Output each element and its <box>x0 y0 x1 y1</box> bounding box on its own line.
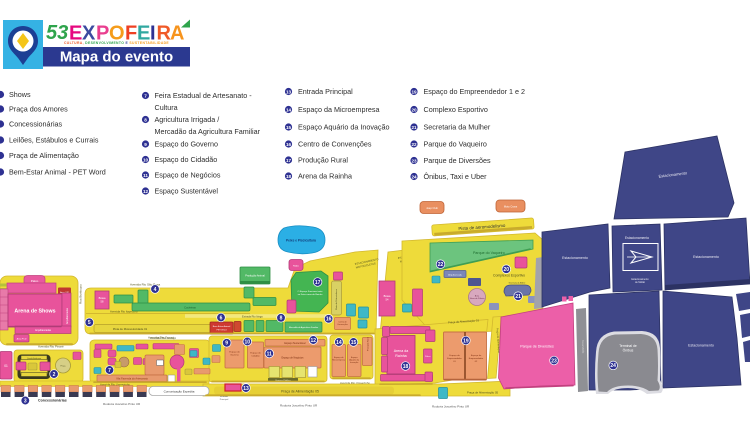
svg-text:Secretaria da Mulher: Secretaria da Mulher <box>509 282 526 285</box>
svg-text:Espaço Aquário da Inovação: Espaço Aquário da Inovação <box>298 123 390 132</box>
svg-text:Espaço do: Espaço do <box>250 353 261 355</box>
svg-text:de Motão: de Motão <box>635 281 646 284</box>
svg-text:15: 15 <box>286 125 292 130</box>
svg-text:Brasa: Brasa <box>384 294 391 298</box>
svg-text:Parque do Vaqueiro: Parque do Vaqueiro <box>473 251 505 255</box>
svg-text:01: 01 <box>4 364 8 368</box>
svg-text:Palco: Palco <box>425 356 431 358</box>
svg-text:19: 19 <box>463 338 469 344</box>
svg-text:Entrada Principal: Entrada Principal <box>298 87 353 96</box>
svg-text:21: 21 <box>515 294 521 300</box>
svg-text:Moto Cross: Moto Cross <box>504 205 518 209</box>
svg-text:Cocheiras: Cocheiras <box>184 306 196 310</box>
svg-text:Rodovia Juscelino Pinto UR: Rodovia Juscelino Pinto UR <box>432 405 470 409</box>
svg-text:10: 10 <box>245 339 251 345</box>
svg-text:23: 23 <box>411 159 417 164</box>
svg-text:17: 17 <box>315 280 321 286</box>
svg-text:O Espaço Funciona tanto: O Espaço Funciona tanto <box>298 290 323 293</box>
svg-text:Ônibus: Ônibus <box>623 348 634 353</box>
svg-text:24: 24 <box>610 363 616 369</box>
svg-text:Ônibus, Taxi e Uber: Ônibus, Taxi e Uber <box>424 172 488 181</box>
svg-text:Complexo Esportivo: Complexo Esportivo <box>424 105 488 114</box>
svg-text:Empreendedor: Empreendedor <box>447 357 462 360</box>
svg-text:Estrada Rio Itinga: Estrada Rio Itinga <box>242 314 263 318</box>
svg-text:5: 5 <box>88 320 91 326</box>
svg-text:Arena da Rainha: Arena da Rainha <box>298 172 352 181</box>
svg-text:8: 8 <box>280 316 283 322</box>
svg-text:Espaço do: Espaço do <box>471 355 482 357</box>
svg-text:21: 21 <box>411 125 417 130</box>
svg-text:Concessionárias: Concessionárias <box>38 399 67 403</box>
svg-text:Parque de Diversões: Parque de Diversões <box>520 345 554 349</box>
svg-text:12: 12 <box>311 338 317 344</box>
svg-text:Parque do Vaqueiro: Parque do Vaqueiro <box>424 140 487 149</box>
svg-text:Espaço do: Espaço do <box>229 352 240 354</box>
svg-text:Produção Rural: Produção Rural <box>367 337 370 351</box>
svg-text:Jeep Club: Jeep Club <box>426 206 438 210</box>
svg-text:Praça de Alimentação: Praça de Alimentação <box>9 151 79 160</box>
svg-text:7: 7 <box>144 94 147 99</box>
svg-text:10: 10 <box>143 158 149 163</box>
svg-text:Trevo Médio: Trevo Médio <box>581 340 584 354</box>
svg-text:Secretaria da Mulher: Secretaria da Mulher <box>424 123 491 132</box>
svg-text:Praça dos Amores: Praça dos Amores <box>9 105 68 114</box>
svg-text:Produção Rural: Produção Rural <box>298 156 348 165</box>
svg-text:Terminal de: Terminal de <box>619 344 637 348</box>
svg-text:Avenida Rio Gurupi: Avenida Rio Gurupi <box>148 336 174 340</box>
svg-text:12: 12 <box>143 189 149 194</box>
svg-text:Inovação: Inovação <box>350 361 359 364</box>
svg-text:Rainha: Rainha <box>395 354 406 358</box>
svg-text:Espaço de Negócios: Espaço de Negócios <box>282 357 305 360</box>
svg-text:24: 24 <box>411 175 417 180</box>
svg-text:CULTURA, DESENVOLVIMENTO E SUS: CULTURA, DESENVOLVIMENTO E SUSTENTABILID… <box>64 41 169 45</box>
svg-text:Peixe e Piscicultura: Peixe e Piscicultura <box>286 239 316 243</box>
svg-text:Leilões, Estábulos e Currais: Leilões, Estábulos e Currais <box>9 136 99 145</box>
svg-text:Espaço do: Espaço do <box>449 355 460 357</box>
svg-text:16: 16 <box>286 142 292 147</box>
svg-text:Palco: Palco <box>31 279 39 283</box>
svg-text:Feira Estadual de Artesanato -: Feira Estadual de Artesanato - <box>155 91 253 100</box>
svg-text:Parque de Diversões: Parque de Diversões <box>424 156 492 165</box>
svg-text:Pista de Motovelocidade 01: Pista de Motovelocidade 01 <box>113 327 148 331</box>
svg-text:20: 20 <box>411 108 417 113</box>
svg-text:18: 18 <box>403 364 409 370</box>
svg-text:Mercadão da Agricultura Famili: Mercadão da Agricultura Familiar <box>155 127 261 136</box>
svg-text:11: 11 <box>267 351 273 357</box>
svg-text:Produção Animal: Produção Animal <box>245 274 265 278</box>
svg-text:Estacionamento: Estacionamento <box>693 255 719 259</box>
svg-text:11: 11 <box>143 173 148 178</box>
svg-text:Estacionamento: Estacionamento <box>562 256 588 260</box>
svg-text:Arena de Shows: Arena de Shows <box>14 309 55 315</box>
svg-text:Governo: Governo <box>230 354 239 357</box>
svg-text:Rodovia Juscelino Pinto UR: Rodovia Juscelino Pinto UR <box>103 402 141 406</box>
svg-text:Microempresa: Microempresa <box>332 360 346 362</box>
svg-text:Rua Buriticupu: Rua Buriticupu <box>79 284 83 304</box>
svg-text:Shows: Shows <box>9 90 31 99</box>
svg-text:Bem Estar Animal: Bem Estar Animal <box>213 325 231 328</box>
svg-text:22: 22 <box>438 262 444 268</box>
svg-text:Espaço do Governo: Espaço do Governo <box>155 140 219 149</box>
svg-text:Espaço Sustentável: Espaço Sustentável <box>155 187 219 196</box>
svg-text:Mapa do evento: Mapa do evento <box>60 49 173 66</box>
svg-text:15: 15 <box>351 340 357 346</box>
svg-text:Brasa: Brasa <box>99 296 106 300</box>
svg-text:Arquibancada: Arquibancada <box>448 274 462 277</box>
svg-text:Espaço de Negócios: Espaço de Negócios <box>155 171 221 180</box>
svg-text:Comunicação Expedita: Comunicação Expedita <box>164 390 195 394</box>
svg-text:Arquibancadas: Arquibancadas <box>66 307 69 324</box>
svg-text:3: 3 <box>24 398 27 404</box>
svg-text:Arquibancadas: Arquibancadas <box>35 329 52 332</box>
svg-text:17: 17 <box>286 158 292 163</box>
svg-text:Rodovia Juscelino Pinto UR: Rodovia Juscelino Pinto UR <box>280 404 318 408</box>
svg-text:PET Word: PET Word <box>216 329 227 332</box>
svg-text:A: A <box>170 23 184 45</box>
svg-text:Espaço Sustentável: Espaço Sustentável <box>284 342 306 345</box>
svg-text:Estacionamento: Estacionamento <box>625 236 649 240</box>
svg-text:Praça de Alimentação 05: Praça de Alimentação 05 <box>467 391 499 395</box>
svg-text:22: 22 <box>411 142 417 147</box>
svg-text:na Feira como da Rainha: na Feira como da Rainha <box>298 293 323 296</box>
svg-text:23: 23 <box>551 358 557 364</box>
svg-text:Cultura: Cultura <box>155 103 178 112</box>
svg-text:14: 14 <box>336 340 342 346</box>
svg-text:Arena da: Arena da <box>394 349 409 353</box>
svg-text:14: 14 <box>286 108 292 113</box>
svg-text:Espaço do Empreendedor 1 e 2: Espaço do Empreendedor 1 e 2 <box>424 87 526 96</box>
svg-text:Praça de Alimentação 05: Praça de Alimentação 05 <box>281 390 319 394</box>
svg-text:2: 2 <box>53 372 56 378</box>
svg-text:Centro de Convenções: Centro de Convenções <box>298 140 372 149</box>
svg-text:Pista de Motociclismo: Pista de Motociclismo <box>335 288 338 310</box>
svg-text:9: 9 <box>144 142 147 147</box>
svg-text:Vila Fazenda do Artesanato: Vila Fazenda do Artesanato <box>116 377 148 381</box>
svg-text:13: 13 <box>243 386 249 392</box>
svg-text:Principal: Principal <box>220 398 229 401</box>
svg-text:13: 13 <box>286 90 292 95</box>
svg-text:Espaço da Microempresa: Espaço da Microempresa <box>298 105 380 114</box>
svg-text:Aquário da: Aquário da <box>349 359 360 362</box>
svg-text:Espaço do Cidadão: Espaço do Cidadão <box>155 155 218 164</box>
svg-text:Quadrilhódromo: Quadrilhódromo <box>27 358 42 360</box>
svg-text:4: 4 <box>154 287 157 293</box>
svg-text:Bem-Estar Animal - PET Word: Bem-Estar Animal - PET Word <box>9 168 106 177</box>
svg-text:Concessionárias: Concessionárias <box>9 120 63 129</box>
svg-text:Convenções: Convenções <box>337 323 348 326</box>
svg-text:6: 6 <box>220 315 223 321</box>
svg-text:16: 16 <box>326 317 332 323</box>
svg-text:19: 19 <box>411 90 417 95</box>
svg-text:Cidadão: Cidadão <box>251 355 260 358</box>
svg-text:Mercadão da Agricultura Famili: Mercadão da Agricultura Familiar <box>289 326 319 329</box>
svg-text:Área PCD: Área PCD <box>17 338 27 341</box>
svg-text:8: 8 <box>144 118 147 123</box>
svg-text:20: 20 <box>504 267 510 273</box>
svg-text:Rádio: Rádio <box>293 266 299 268</box>
svg-text:9: 9 <box>225 341 228 347</box>
svg-text:18: 18 <box>286 174 292 179</box>
svg-text:Empreendedor: Empreendedor <box>469 357 484 360</box>
svg-text:Agricultura Irrigada /: Agricultura Irrigada / <box>155 115 220 124</box>
svg-text:Complexos Esportivo: Complexos Esportivo <box>493 274 525 278</box>
svg-text:Estacionamento: Estacionamento <box>688 344 714 348</box>
svg-text:Show de Prêmio: Show de Prêmio <box>470 298 486 300</box>
svg-text:7: 7 <box>108 368 111 374</box>
